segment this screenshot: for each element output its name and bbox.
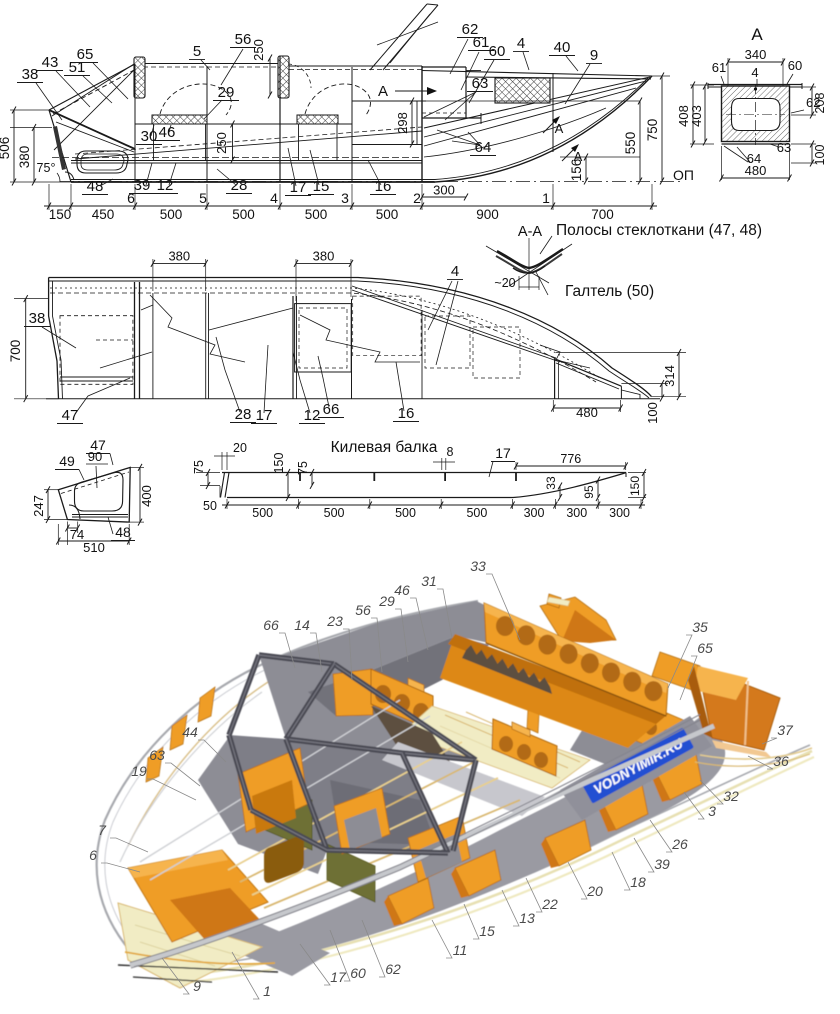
svg-text:56: 56 <box>235 31 252 48</box>
svg-text:33: 33 <box>544 476 558 490</box>
svg-text:510: 510 <box>83 540 105 555</box>
svg-text:380: 380 <box>17 146 32 169</box>
svg-text:16: 16 <box>398 405 415 422</box>
svg-text:3: 3 <box>341 190 349 206</box>
svg-text:75: 75 <box>296 461 310 475</box>
svg-text:46: 46 <box>394 582 410 598</box>
svg-text:75: 75 <box>192 460 206 474</box>
svg-text:156: 156 <box>569 159 584 182</box>
svg-text:66: 66 <box>323 401 340 418</box>
svg-text:~20: ~20 <box>494 276 515 290</box>
svg-text:500: 500 <box>395 506 416 520</box>
svg-text:500: 500 <box>252 506 273 520</box>
svg-text:19: 19 <box>131 763 147 779</box>
svg-text:500: 500 <box>466 506 487 520</box>
svg-text:100: 100 <box>813 145 827 166</box>
svg-text:ОП: ОП <box>673 167 694 183</box>
svg-text:500: 500 <box>160 207 183 222</box>
svg-text:900: 900 <box>476 207 499 222</box>
svg-text:13: 13 <box>519 910 535 926</box>
svg-text:22: 22 <box>541 896 558 912</box>
svg-text:450: 450 <box>92 207 115 222</box>
svg-text:403: 403 <box>689 105 704 127</box>
svg-text:11: 11 <box>453 942 468 958</box>
svg-text:500: 500 <box>324 506 345 520</box>
svg-text:15: 15 <box>313 178 330 195</box>
svg-text:480: 480 <box>745 163 767 178</box>
svg-text:20: 20 <box>233 441 247 455</box>
svg-text:1: 1 <box>542 190 550 206</box>
svg-text:1: 1 <box>263 983 271 999</box>
svg-text:66: 66 <box>263 617 279 633</box>
svg-text:31: 31 <box>421 573 437 589</box>
svg-text:500: 500 <box>232 207 255 222</box>
svg-text:5: 5 <box>193 43 201 60</box>
svg-text:17: 17 <box>290 179 307 196</box>
svg-text:35: 35 <box>692 619 708 635</box>
svg-text:550: 550 <box>623 132 638 155</box>
svg-text:30: 30 <box>141 128 158 145</box>
svg-text:95: 95 <box>582 485 596 499</box>
svg-text:Килевая балка: Килевая балка <box>331 439 438 456</box>
svg-text:60: 60 <box>350 965 366 981</box>
svg-text:17: 17 <box>330 969 347 985</box>
svg-text:29: 29 <box>378 593 395 609</box>
svg-text:60: 60 <box>788 58 802 73</box>
svg-text:14: 14 <box>294 617 310 633</box>
svg-text:18: 18 <box>630 874 646 890</box>
svg-text:12: 12 <box>304 407 321 424</box>
svg-text:16: 16 <box>375 178 392 195</box>
svg-text:776: 776 <box>560 452 581 466</box>
svg-text:100: 100 <box>645 402 660 424</box>
svg-text:150: 150 <box>272 453 286 474</box>
svg-text:29: 29 <box>218 84 235 101</box>
svg-text:Галтель (50): Галтель (50) <box>565 283 654 300</box>
svg-text:63: 63 <box>472 75 489 92</box>
svg-text:506: 506 <box>0 137 12 160</box>
svg-text:65: 65 <box>77 46 94 63</box>
svg-text:300: 300 <box>566 506 587 520</box>
svg-text:62: 62 <box>385 961 401 977</box>
svg-text:500: 500 <box>305 207 328 222</box>
svg-text:5: 5 <box>199 190 207 206</box>
svg-text:500: 500 <box>376 207 399 222</box>
svg-text:2: 2 <box>413 190 421 206</box>
svg-text:26: 26 <box>671 836 688 852</box>
svg-text:250: 250 <box>251 39 266 61</box>
svg-text:61: 61 <box>473 34 490 51</box>
svg-text:А: А <box>751 25 763 44</box>
svg-text:9: 9 <box>193 978 201 994</box>
svg-text:4: 4 <box>751 65 758 80</box>
svg-text:8: 8 <box>447 445 454 459</box>
svg-text:Полосы стеклоткани (47, 48): Полосы стеклоткани (47, 48) <box>556 222 762 239</box>
svg-text:300: 300 <box>609 506 630 520</box>
svg-text:380: 380 <box>313 249 335 264</box>
svg-text:150: 150 <box>49 207 72 222</box>
svg-text:48: 48 <box>115 524 131 540</box>
svg-text:247: 247 <box>31 495 46 517</box>
svg-text:65: 65 <box>697 640 713 656</box>
svg-text:7: 7 <box>98 822 107 838</box>
svg-text:44: 44 <box>182 724 198 740</box>
svg-text:50: 50 <box>203 499 217 513</box>
svg-text:А: А <box>378 83 388 100</box>
svg-text:23: 23 <box>326 613 343 629</box>
svg-text:480: 480 <box>576 405 598 420</box>
svg-text:28: 28 <box>235 406 252 423</box>
svg-text:38: 38 <box>22 66 39 83</box>
svg-text:250: 250 <box>214 132 229 154</box>
svg-text:46: 46 <box>159 124 176 141</box>
svg-text:700: 700 <box>8 340 23 363</box>
svg-text:208: 208 <box>813 93 827 114</box>
svg-text:4: 4 <box>451 263 459 280</box>
svg-text:750: 750 <box>645 119 660 142</box>
svg-text:64: 64 <box>475 139 492 156</box>
svg-text:17: 17 <box>495 445 511 461</box>
svg-text:400: 400 <box>139 485 154 507</box>
svg-text:32: 32 <box>723 788 739 804</box>
svg-text:48: 48 <box>87 178 104 195</box>
svg-text:300: 300 <box>433 183 455 198</box>
svg-text:4: 4 <box>270 190 278 206</box>
svg-text:63: 63 <box>777 140 791 155</box>
svg-text:20: 20 <box>586 883 603 899</box>
svg-text:49: 49 <box>59 453 75 469</box>
svg-text:56: 56 <box>355 602 371 618</box>
svg-text:3: 3 <box>708 803 716 819</box>
svg-text:300: 300 <box>524 506 545 520</box>
svg-text:61: 61 <box>712 60 726 75</box>
svg-text:4: 4 <box>517 35 525 52</box>
svg-text:28: 28 <box>231 177 248 194</box>
svg-text:380: 380 <box>168 249 190 264</box>
svg-text:40: 40 <box>554 39 571 56</box>
svg-text:75°: 75° <box>37 161 56 175</box>
svg-text:43: 43 <box>42 54 59 71</box>
svg-text:А: А <box>555 121 564 136</box>
svg-text:37: 37 <box>777 722 794 738</box>
svg-text:60: 60 <box>489 43 506 60</box>
svg-text:38: 38 <box>29 310 46 327</box>
svg-text:15: 15 <box>479 923 495 939</box>
svg-text:9: 9 <box>590 47 598 64</box>
svg-text:90: 90 <box>88 449 102 464</box>
svg-text:74: 74 <box>70 527 84 542</box>
svg-text:700: 700 <box>591 207 614 222</box>
svg-text:150: 150 <box>628 476 642 496</box>
svg-text:6: 6 <box>89 847 97 863</box>
svg-text:39: 39 <box>654 856 670 872</box>
svg-text:298: 298 <box>395 112 410 134</box>
svg-text:36: 36 <box>773 753 789 769</box>
svg-text:33: 33 <box>470 558 486 574</box>
svg-text:63: 63 <box>149 747 165 763</box>
svg-text:340: 340 <box>745 47 767 62</box>
svg-text:47: 47 <box>62 407 79 424</box>
svg-text:А-А: А-А <box>518 224 543 240</box>
